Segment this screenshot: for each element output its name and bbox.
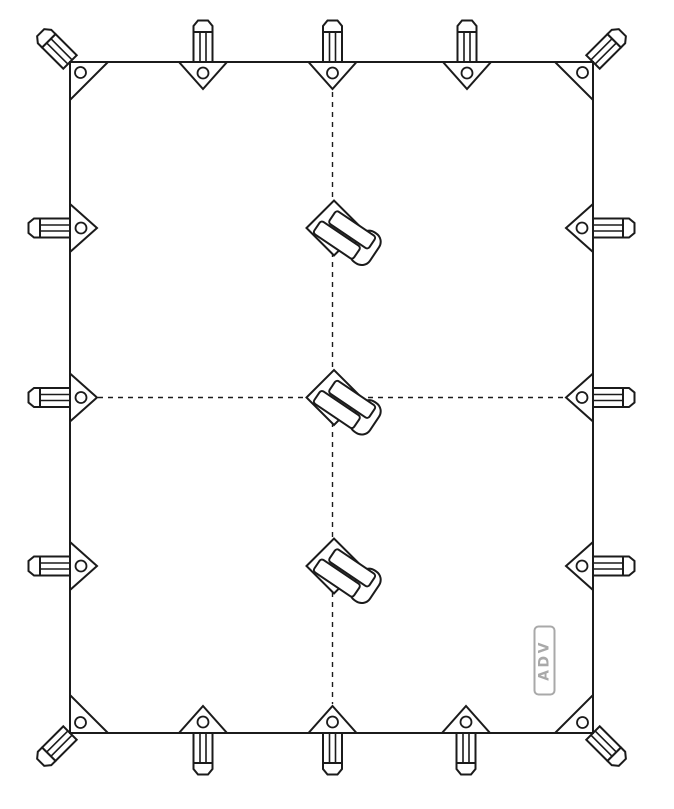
toggle-peg-cap [457,763,476,775]
toggle-peg-body [593,219,623,238]
grommet [461,717,472,728]
tarp-diagram: ADV [0,0,674,809]
edge-peg [29,557,71,576]
toggle-peg-cap [29,557,41,576]
toggle-peg-cap [623,557,635,576]
tarp-diagram-canvas: ADV [0,0,674,809]
toggle-peg-body [323,733,342,763]
edge-peg [593,388,635,407]
toggle-peg-cap [623,388,635,407]
toggle-peg-body [40,557,70,576]
toggle-peg-cap [29,219,41,238]
toggle-peg-body [194,733,213,763]
edge-peg [323,733,342,775]
grommet [198,68,209,79]
toggle-peg-body [593,557,623,576]
edge-peg [323,21,342,63]
grommet [577,561,588,572]
grommet [327,68,338,79]
edge-peg [593,219,635,238]
toggle-peg-body [323,32,342,62]
toggle-peg-body [40,388,70,407]
grommet [577,67,588,78]
toggle-peg-cap [29,388,41,407]
toggle-peg-cap [323,763,342,775]
grommet [577,392,588,403]
toggle-peg-cap [458,21,477,33]
edge-peg [593,557,635,576]
edge-peg [29,219,71,238]
grommet [75,717,86,728]
grommet [327,717,338,728]
toggle-peg-cap [323,21,342,33]
edge-peg [458,21,477,63]
edge-peg [194,21,213,63]
edge-peg [194,733,213,775]
toggle-peg-cap [194,763,213,775]
grommet [577,223,588,234]
edge-peg [29,388,71,407]
edge-peg [457,733,476,775]
toggle-peg-body [194,32,213,62]
grommet [76,392,87,403]
grommet [76,561,87,572]
toggle-peg-body [593,388,623,407]
grommet [75,67,86,78]
toggle-peg-body [40,219,70,238]
toggle-peg-cap [194,21,213,33]
toggle-peg-body [457,733,476,763]
toggle-peg-cap [623,219,635,238]
toggle-peg-body [458,32,477,62]
grommet [198,717,209,728]
grommet [462,68,473,79]
brand-logo-text: ADV [537,640,553,681]
grommet [76,223,87,234]
grommet [577,717,588,728]
